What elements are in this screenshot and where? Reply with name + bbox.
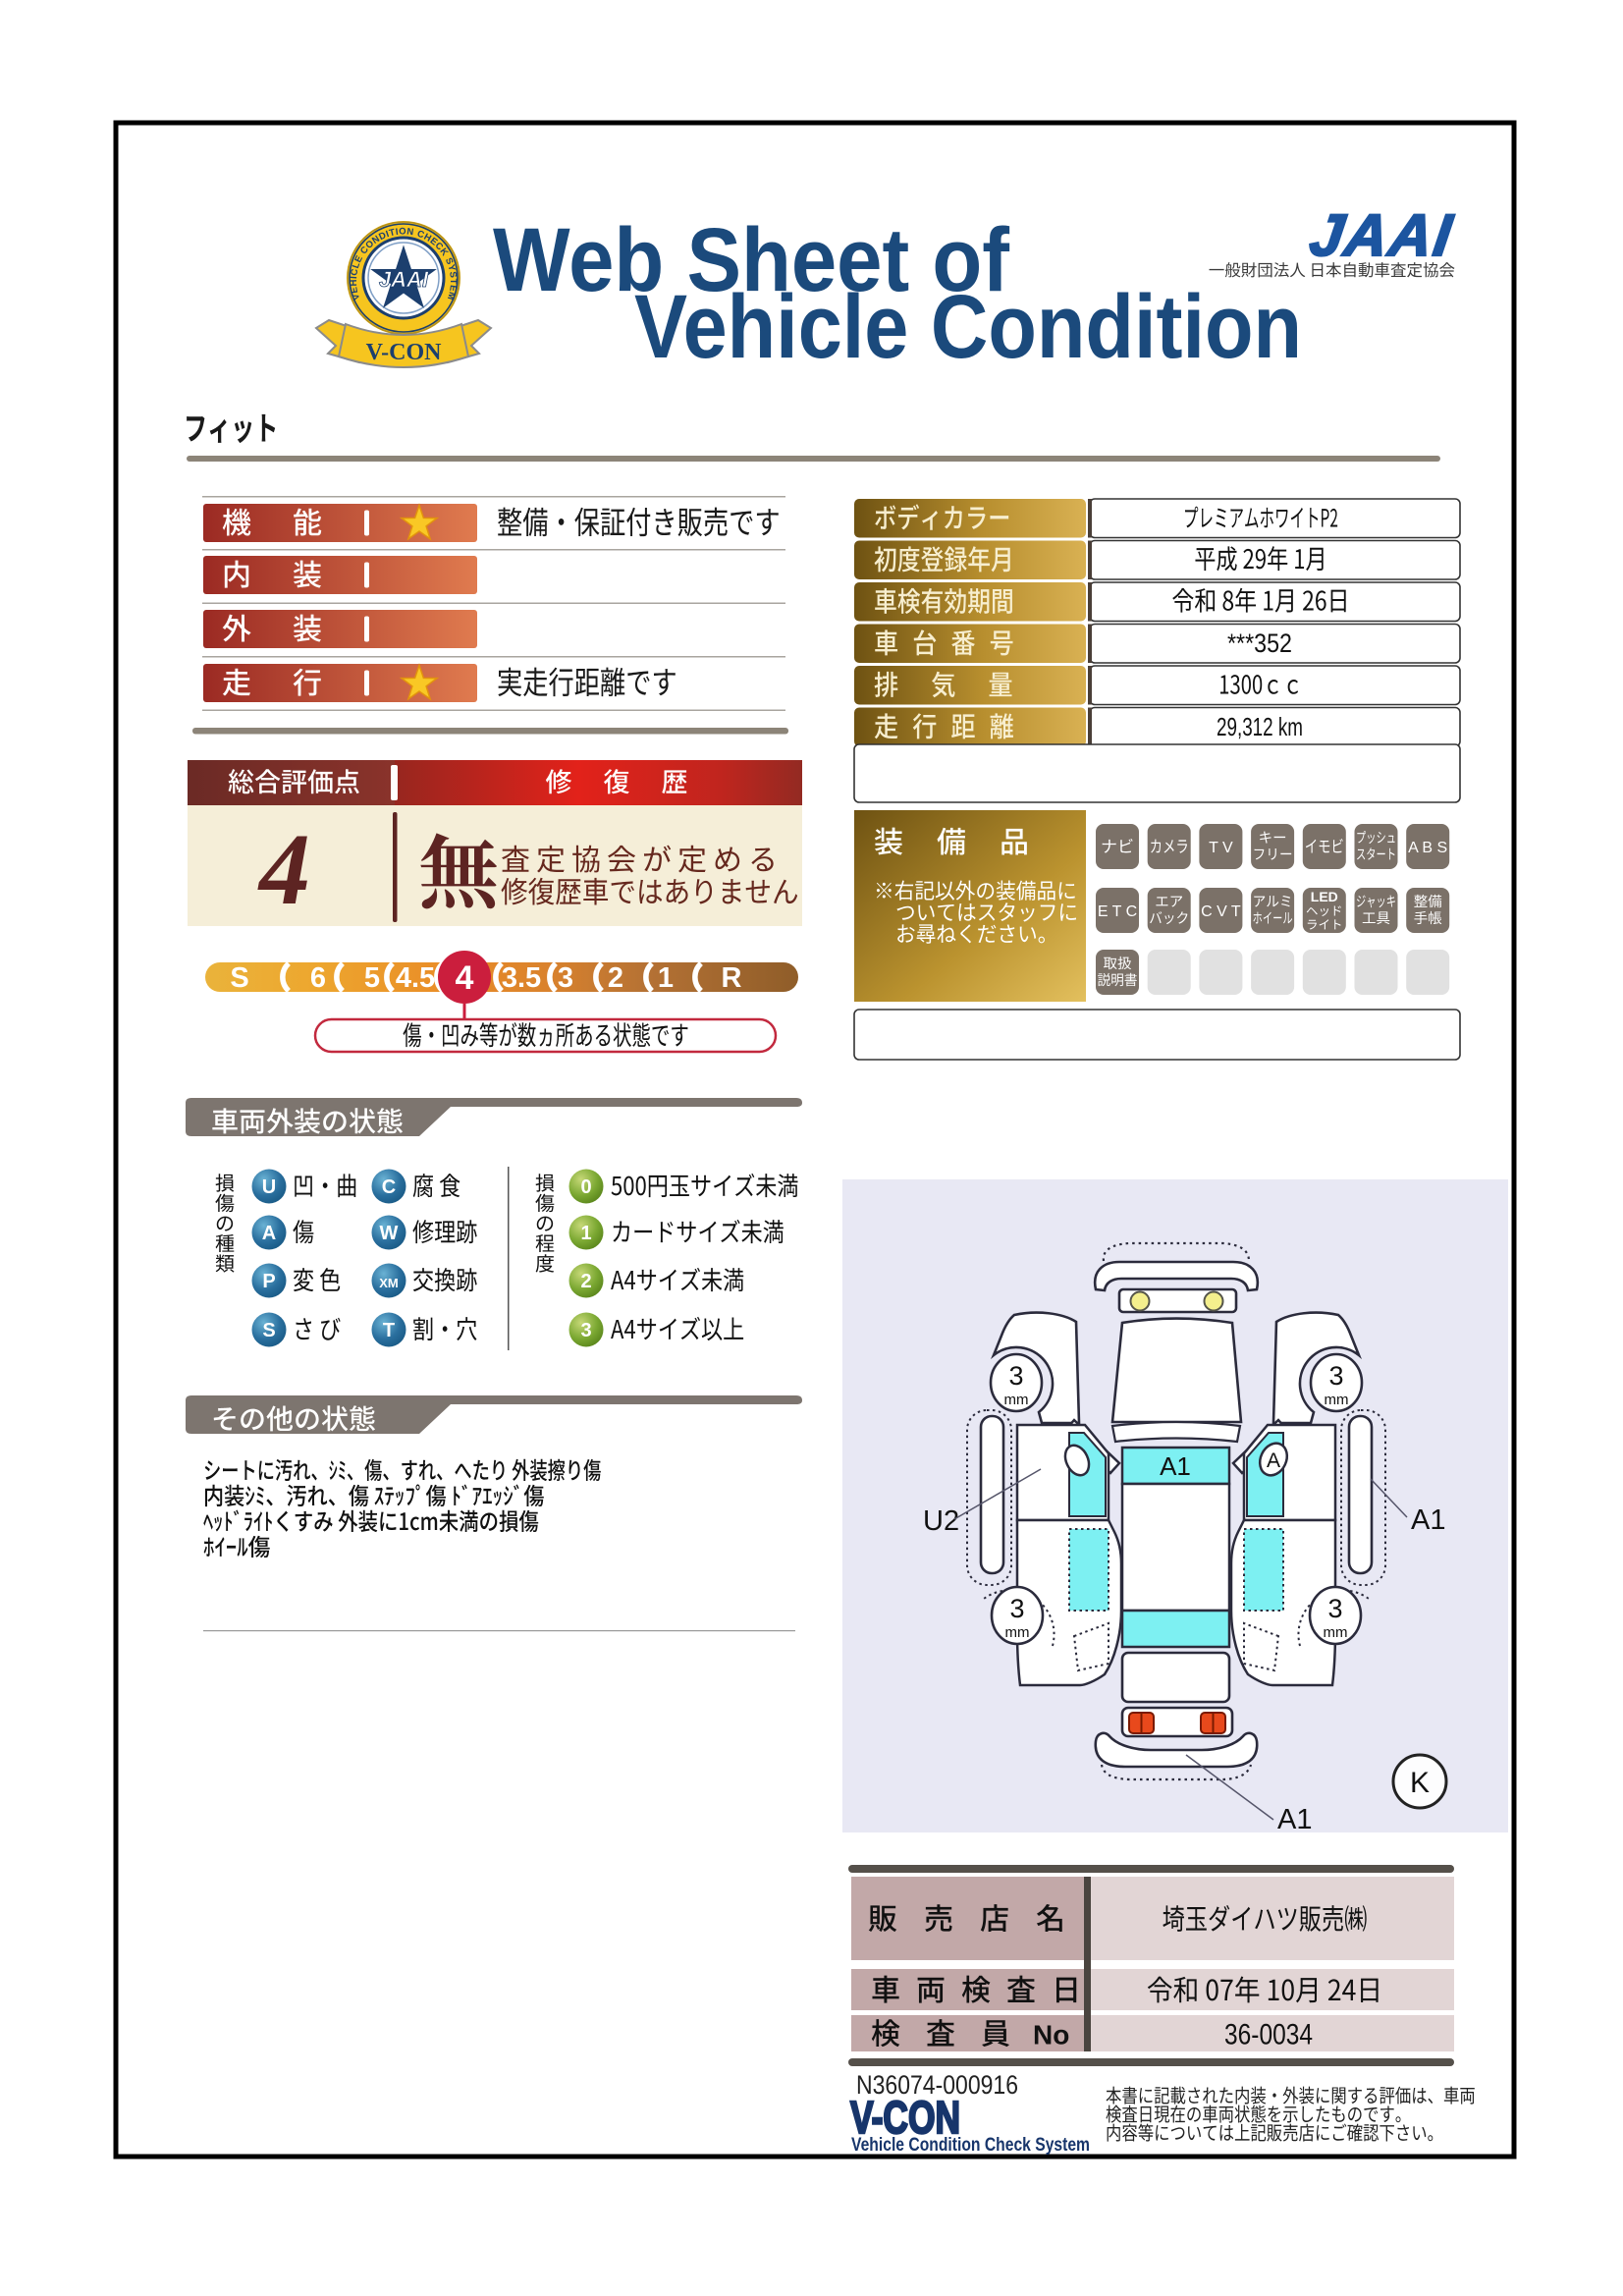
svg-text:2: 2 [608, 962, 623, 994]
svg-text:3: 3 [580, 1320, 591, 1341]
svg-text:29,312 km: 29,312 km [1217, 712, 1303, 741]
svg-text:4: 4 [257, 813, 310, 926]
svg-text:Vehicle Condition: Vehicle Condition [634, 277, 1302, 377]
svg-text:3: 3 [1008, 1361, 1023, 1391]
svg-text:6: 6 [310, 962, 326, 994]
svg-text:36-0034: 36-0034 [1224, 2019, 1313, 2051]
svg-text:T: T [383, 1320, 395, 1341]
svg-text:3.5: 3.5 [502, 962, 541, 994]
svg-text:A: A [1267, 1449, 1280, 1472]
svg-text:Vehicle Condition Check System: Vehicle Condition Check System [851, 2135, 1090, 2156]
svg-text:mm: mm [1324, 1624, 1348, 1641]
svg-text:JAAI: JAAI [379, 267, 429, 292]
svg-text:0: 0 [580, 1176, 591, 1198]
svg-text:4.5: 4.5 [396, 962, 435, 994]
svg-text:4: 4 [456, 959, 474, 997]
svg-text:A1: A1 [1160, 1451, 1191, 1481]
svg-text:A: A [262, 1223, 276, 1244]
svg-text:V-CON: V-CON [366, 340, 443, 365]
svg-text:JAAI: JAAI [1306, 201, 1457, 268]
svg-text:5: 5 [364, 962, 380, 994]
svg-text:T V: T V [1209, 840, 1233, 856]
svg-text:S: S [262, 1320, 275, 1341]
svg-text:3: 3 [1327, 1594, 1342, 1623]
svg-text:XM: XM [379, 1276, 399, 1290]
svg-text:R: R [722, 962, 742, 994]
svg-text:W: W [380, 1223, 399, 1244]
svg-text:3: 3 [558, 962, 573, 994]
svg-text:mm: mm [1325, 1392, 1349, 1408]
svg-text:A1: A1 [1277, 1804, 1312, 1835]
svg-text:mm: mm [1004, 1392, 1029, 1408]
svg-text:2: 2 [580, 1271, 591, 1292]
svg-text:E T C: E T C [1098, 903, 1137, 920]
svg-text:3: 3 [1009, 1594, 1024, 1623]
svg-text:C V T: C V T [1201, 903, 1241, 920]
svg-text:***352: ***352 [1227, 629, 1292, 658]
svg-text:LED: LED [1311, 889, 1338, 904]
svg-text:1: 1 [580, 1223, 591, 1244]
svg-text:A1: A1 [1411, 1504, 1445, 1536]
svg-text:P: P [262, 1271, 275, 1292]
svg-text:K: K [1410, 1767, 1430, 1799]
svg-text:No: No [1033, 2020, 1069, 2050]
svg-text:U: U [262, 1176, 276, 1198]
svg-text:S: S [230, 962, 248, 994]
svg-text:C: C [382, 1176, 396, 1198]
svg-text:U2: U2 [923, 1505, 959, 1537]
svg-text:1: 1 [658, 962, 674, 994]
svg-text:mm: mm [1005, 1624, 1030, 1641]
svg-text:3: 3 [1328, 1361, 1343, 1391]
svg-text:A B S: A B S [1408, 840, 1447, 856]
